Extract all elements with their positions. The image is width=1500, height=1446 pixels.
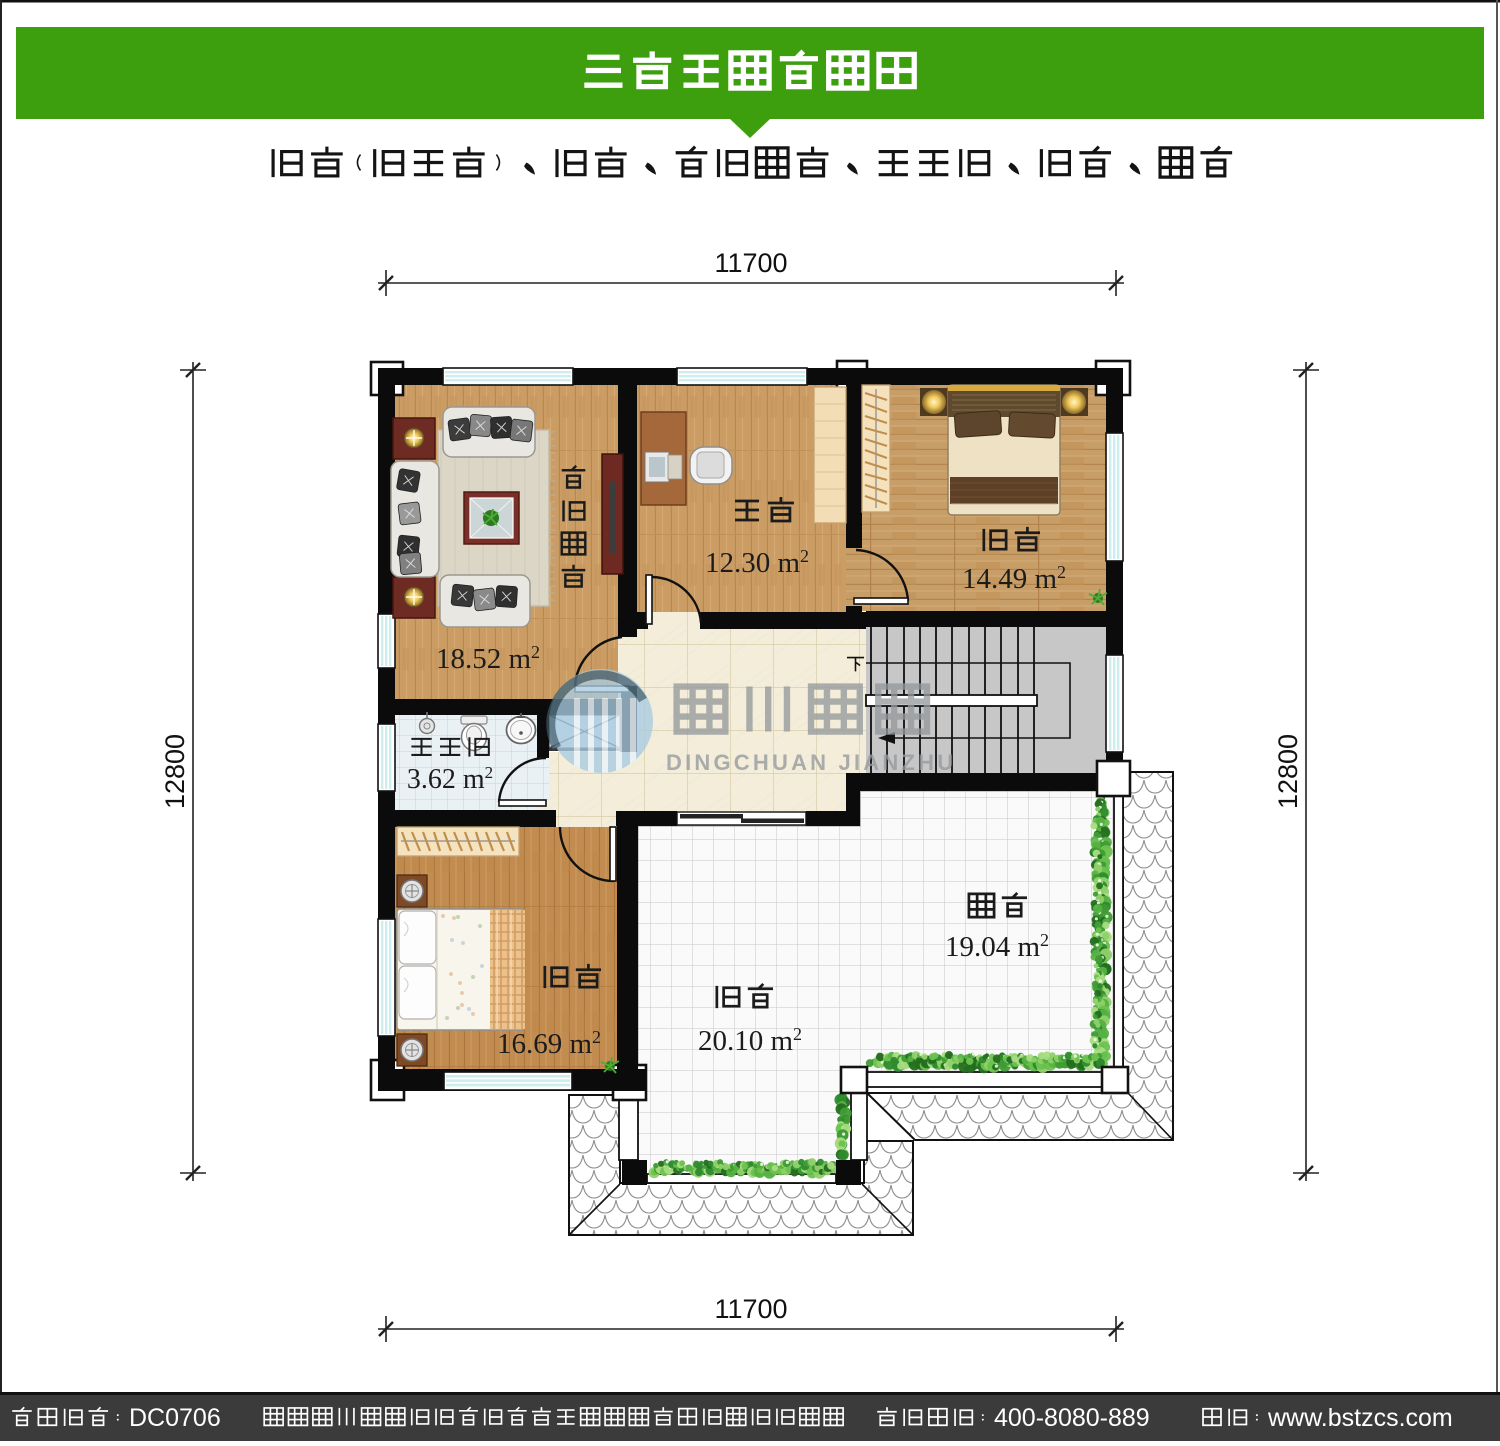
svg-text:3.62 m2: 3.62 m2 [407, 763, 493, 795]
svg-text:DC0706: DC0706 [129, 1404, 221, 1432]
svg-text:20.10 m2: 20.10 m2 [698, 1024, 802, 1057]
svg-text:16.69 m2: 16.69 m2 [497, 1027, 601, 1060]
svg-text:19.04 m2: 19.04 m2 [945, 930, 1049, 963]
svg-text:14.49 m2: 14.49 m2 [962, 562, 1066, 595]
svg-text:www.bstzcs.com: www.bstzcs.com [1267, 1404, 1453, 1432]
svg-text:12800: 12800 [160, 734, 190, 809]
svg-text:DINGCHUAN JIANZHU: DINGCHUAN JIANZHU [666, 750, 956, 775]
svg-text:400-8080-889: 400-8080-889 [994, 1404, 1150, 1432]
svg-text:11700: 11700 [714, 248, 787, 278]
svg-text:18.52 m2: 18.52 m2 [436, 642, 540, 675]
svg-text:12.30 m2: 12.30 m2 [705, 546, 809, 579]
svg-text:11700: 11700 [714, 1294, 787, 1324]
svg-text:12800: 12800 [1273, 734, 1303, 809]
